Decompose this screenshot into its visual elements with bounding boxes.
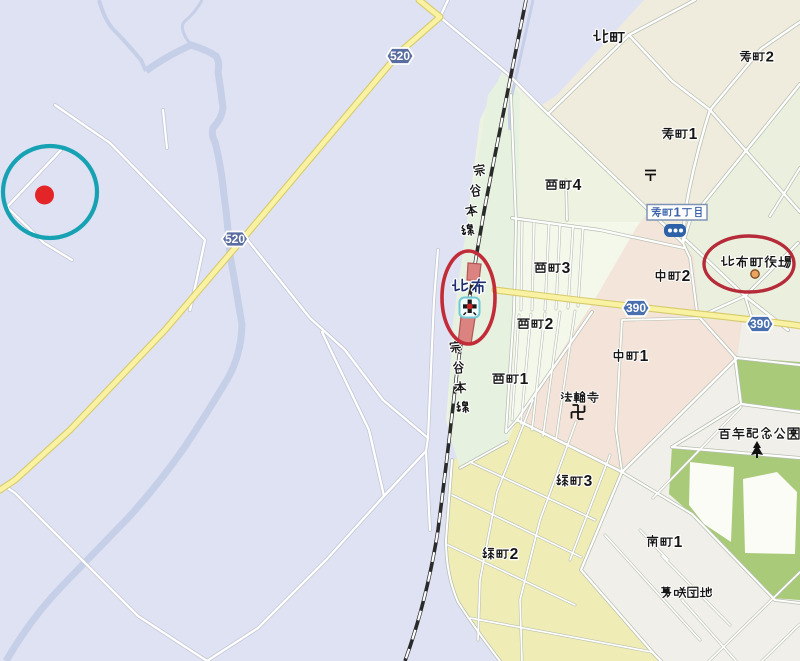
svg-text:1: 1 xyxy=(640,348,649,365)
svg-text:2: 2 xyxy=(766,49,774,66)
svg-text:2: 2 xyxy=(682,268,691,285)
svg-text:1: 1 xyxy=(689,126,698,143)
svg-text:4: 4 xyxy=(573,177,582,194)
svg-text:520: 520 xyxy=(225,232,245,246)
svg-text:3: 3 xyxy=(562,260,571,277)
svg-text:390: 390 xyxy=(626,301,646,315)
svg-text:390: 390 xyxy=(750,317,770,331)
svg-text:1: 1 xyxy=(674,205,681,220)
svg-text:3: 3 xyxy=(584,473,593,490)
svg-text:520: 520 xyxy=(390,49,410,63)
svg-text:2: 2 xyxy=(510,546,519,563)
svg-text:2: 2 xyxy=(545,316,554,333)
svg-text:1: 1 xyxy=(520,371,529,388)
svg-text:1: 1 xyxy=(674,534,683,551)
